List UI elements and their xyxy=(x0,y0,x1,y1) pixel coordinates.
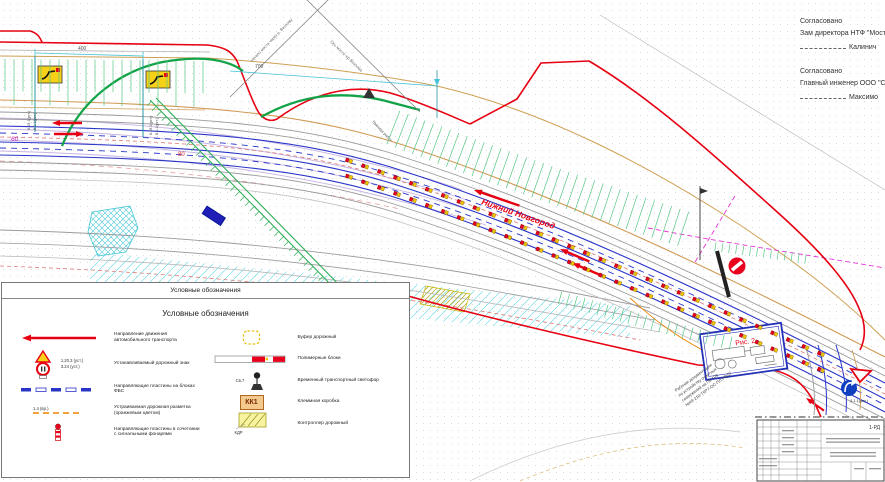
dim-400-label: 400 xyxy=(78,46,87,52)
legend-item-direction: Направление движения автомобильного тран… xyxy=(2,327,206,349)
axis-label-bridge-axis: Ось моста ч/р Везлома xyxy=(329,39,364,73)
dimension-400: 400 xyxy=(35,46,143,61)
approval-signature: Калинич xyxy=(849,44,876,51)
legend-section-title: Условные обозначения xyxy=(2,309,409,318)
approval-block-1: Согласовано Зам директора НТФ "Мостоо Ка… xyxy=(800,18,885,52)
approval-role: Зам директора НТФ "Мостоо xyxy=(800,30,885,39)
direction-arrow-icon xyxy=(18,334,98,342)
flag-pole xyxy=(700,186,708,260)
hatch-ticks xyxy=(715,242,806,263)
plate-with-lamp-icon xyxy=(51,423,65,442)
legend-item-guide-plates: Направляющие пластины на блоках ФБС xyxy=(2,379,206,401)
stamp-code-label: 1-РД xyxy=(869,425,880,431)
sign-code: 3.24 (уст.) xyxy=(61,364,83,369)
ramp-curves xyxy=(806,345,861,415)
approval-label: Согласовано xyxy=(800,68,885,77)
blue-sign-code-label: 4.1.1(уст.) xyxy=(850,398,869,403)
approval-block-2: Согласовано Главный инженер ООО "Стр Мак… xyxy=(800,68,885,102)
orange-marking-icon: 1.4 (вр.) xyxy=(33,406,83,415)
dim-700-label: 700 xyxy=(255,64,264,70)
legend-item-controller: КДР Контроллер дорожный xyxy=(206,413,410,435)
road-signs-icon xyxy=(33,349,59,379)
terminal-box-icon: КК1 xyxy=(240,395,264,410)
sign-code-label: 6.19.1(уст.) xyxy=(149,115,153,135)
road-plan-sheet: начало моста через р. Везлому Ось моста … xyxy=(0,0,885,482)
mandatory-direction-sign-icon xyxy=(841,380,857,396)
polymer-blocks-icon xyxy=(214,354,290,364)
approval-signature: Максимо xyxy=(849,94,878,101)
blue-block-symbol xyxy=(202,206,225,226)
dimension-700: 700 xyxy=(230,64,440,118)
sign-code-label: 8.1.1(уст.) xyxy=(33,112,37,130)
legend-item-road-sign: 1.20.3 (уст.) 3.24 (уст.) Устанавливаемы… xyxy=(2,349,206,379)
title-block: 1-РД xyxy=(755,417,884,481)
approval-role: Главный инженер ООО "Стр xyxy=(800,80,885,89)
legend-item-terminal-box: КК1 Клеммная коробка xyxy=(206,392,410,414)
sign-code-label: 8.1.1(уст.) xyxy=(155,117,159,135)
legend-item-traffic-light: Св.7 Временный транспортный светофор xyxy=(206,370,410,392)
guide-plates-icon xyxy=(19,386,97,393)
road-buffer-icon xyxy=(241,329,263,347)
legend-item-orange-marking: 1.4 (вр.) Устраиваемая дорожная разметка… xyxy=(2,400,206,422)
legend-item-polymer-blocks: Полимерные блоки xyxy=(206,349,410,371)
legend-panel: Условные обозначения Условные обозначени… xyxy=(1,282,410,478)
signature-line xyxy=(800,41,846,49)
legend-box-title: Условные обозначения xyxy=(2,283,409,294)
legend-item-plate-lamp: Направляющие пластины в сочетании с сигн… xyxy=(2,422,206,444)
road-controller-icon: КДР xyxy=(235,412,269,435)
signature-line xyxy=(800,91,846,99)
speed-80-label: 80 xyxy=(178,152,185,158)
sign-code-label: 6.19.1(уст.) xyxy=(27,110,31,130)
speed-60-label: 60 xyxy=(11,136,19,143)
approval-label: Согласовано xyxy=(800,18,885,27)
temp-traffic-light-icon: Св.7 xyxy=(236,371,268,391)
yield-sign-icon xyxy=(851,369,871,382)
prohibition-sign-icon xyxy=(729,258,746,275)
legend-item-buffer: Буфер дорожный xyxy=(206,327,410,349)
legend-divider xyxy=(2,298,409,299)
